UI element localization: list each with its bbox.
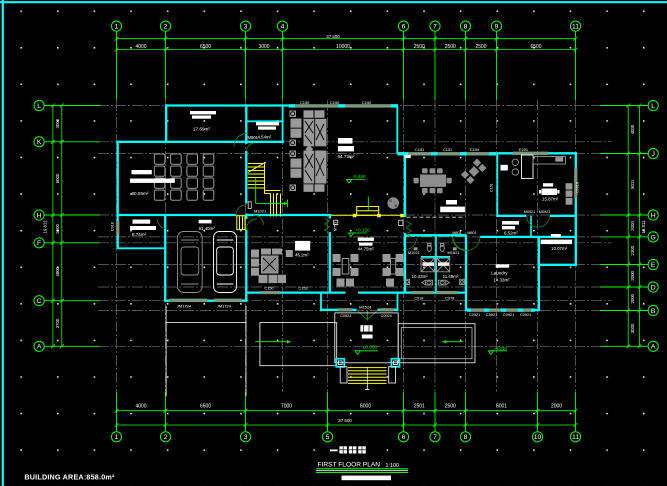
svg-text:Laundry: Laundry <box>491 270 508 275</box>
svg-text:4800: 4800 <box>55 266 60 276</box>
svg-text:M801: M801 <box>452 231 462 235</box>
svg-text:C150: C150 <box>300 100 310 105</box>
svg-text:8.74m²: 8.74m² <box>132 232 147 237</box>
svg-text:M1021: M1021 <box>408 250 420 255</box>
svg-text:J: J <box>651 151 654 158</box>
svg-text:C0921: C0921 <box>469 313 480 317</box>
svg-text:1:100: 1:100 <box>386 463 400 469</box>
svg-text:C150: C150 <box>362 100 372 105</box>
svg-text:2300: 2300 <box>630 245 635 255</box>
svg-text:M801: M801 <box>248 135 259 140</box>
svg-text:2500: 2500 <box>475 44 486 50</box>
svg-text:10: 10 <box>534 434 542 441</box>
svg-text:L: L <box>37 103 41 110</box>
svg-text:2500: 2500 <box>55 223 60 233</box>
svg-text:C150: C150 <box>265 287 274 291</box>
svg-text:A: A <box>651 344 656 351</box>
svg-text:M1524: M1524 <box>359 304 372 309</box>
svg-text:M753: M753 <box>334 222 338 231</box>
svg-text:6.52m²: 6.52m² <box>504 231 518 236</box>
svg-text:C978: C978 <box>445 296 454 300</box>
svg-text:FIRST FLOOR PLAN: FIRST FLOOR PLAN <box>318 461 381 468</box>
svg-text:44.75m²: 44.75m² <box>358 247 375 252</box>
svg-text:C151: C151 <box>443 147 452 152</box>
svg-text:37 500: 37 500 <box>338 418 352 423</box>
svg-text:6500: 6500 <box>200 404 211 410</box>
svg-text:C0921: C0921 <box>503 313 514 317</box>
svg-text:15.87m²: 15.87m² <box>542 197 559 202</box>
svg-text:M0921: M0921 <box>539 210 551 214</box>
svg-text:2: 2 <box>164 434 168 441</box>
svg-text:C: C <box>37 298 42 305</box>
svg-text:2: 2 <box>164 24 168 31</box>
svg-text:6000: 6000 <box>360 404 371 410</box>
svg-text:JM1724: JM1724 <box>217 304 232 309</box>
svg-text:11: 11 <box>572 24 579 31</box>
svg-text:4000: 4000 <box>135 404 146 410</box>
svg-text:6500: 6500 <box>200 44 211 50</box>
svg-text:1: 1 <box>115 24 119 31</box>
svg-text:6001: 6001 <box>496 404 507 410</box>
svg-text:3: 3 <box>244 434 248 441</box>
svg-text:60.55m²: 60.55m² <box>132 191 149 196</box>
svg-text:10.07m²: 10.07m² <box>551 246 568 251</box>
svg-text:1: 1 <box>115 434 119 441</box>
svg-text:D: D <box>651 284 656 291</box>
svg-text:M1021: M1021 <box>254 209 267 214</box>
svg-text:F: F <box>37 240 41 247</box>
svg-text:2000: 2000 <box>630 221 635 231</box>
svg-text:BUILDING AREA:858.0m²: BUILDING AREA:858.0m² <box>24 473 115 482</box>
svg-text:2500: 2500 <box>414 44 425 50</box>
svg-text:C0921: C0921 <box>520 313 531 317</box>
svg-text:3000: 3000 <box>630 323 635 333</box>
svg-text:+0.150: +0.150 <box>356 228 371 233</box>
svg-text:L: L <box>651 103 655 110</box>
svg-text:B: B <box>651 308 656 315</box>
svg-text:9: 9 <box>495 24 499 31</box>
svg-text:C151: C151 <box>415 147 424 152</box>
svg-text:7: 7 <box>433 434 437 441</box>
svg-text:5011: 5011 <box>630 179 635 189</box>
svg-text:3: 3 <box>244 24 248 31</box>
svg-text:E201: E201 <box>519 147 528 152</box>
svg-text:G: G <box>651 234 656 241</box>
svg-text:8: 8 <box>464 24 468 31</box>
svg-text:C153: C153 <box>299 287 308 291</box>
svg-text:JM1724: JM1724 <box>177 304 192 309</box>
svg-text:3000: 3000 <box>55 118 60 128</box>
svg-text:C918: C918 <box>414 296 423 300</box>
svg-text:14.33m²: 14.33m² <box>494 277 511 282</box>
svg-text:4: 4 <box>281 24 285 31</box>
svg-text:10000: 10000 <box>336 44 350 50</box>
svg-text:61.40m²: 61.40m² <box>199 226 216 231</box>
svg-text:6: 6 <box>402 434 406 441</box>
svg-text:M801: M801 <box>467 231 477 235</box>
svg-text:H: H <box>37 212 42 219</box>
svg-text:6500: 6500 <box>530 44 541 50</box>
svg-text:A: A <box>37 344 42 351</box>
svg-text:6000: 6000 <box>55 173 60 183</box>
svg-text:-0.030: -0.030 <box>494 346 507 351</box>
svg-text:17.69m²: 17.69m² <box>193 127 210 132</box>
svg-text:11.49m²: 11.49m² <box>443 274 459 279</box>
svg-text:C154: C154 <box>470 147 480 152</box>
svg-text:C151: C151 <box>490 183 494 192</box>
svg-text:4000: 4000 <box>630 124 635 134</box>
svg-text:2000: 2000 <box>630 270 635 280</box>
svg-text:C918: C918 <box>111 222 115 231</box>
svg-text:6: 6 <box>402 24 406 31</box>
svg-text:C0921: C0921 <box>486 313 497 317</box>
svg-text:E: E <box>651 262 656 269</box>
svg-text:19 811: 19 811 <box>43 220 48 234</box>
svg-text:2500: 2500 <box>445 44 456 50</box>
svg-text:4000: 4000 <box>135 44 146 50</box>
svg-text:4.54m²: 4.54m² <box>258 135 272 140</box>
svg-text:M1521: M1521 <box>448 250 460 255</box>
svg-text:K: K <box>37 139 42 146</box>
svg-text:5: 5 <box>326 434 330 441</box>
svg-text:37 500: 37 500 <box>326 34 340 39</box>
svg-text:C0924: C0924 <box>340 314 351 318</box>
svg-text:8: 8 <box>464 434 468 441</box>
svg-text:19 811: 19 811 <box>641 220 646 234</box>
svg-text:C150: C150 <box>330 100 340 105</box>
svg-text:C0924: C0924 <box>381 314 392 318</box>
svg-text:2000: 2000 <box>551 404 562 410</box>
svg-text:3000: 3000 <box>258 44 269 50</box>
svg-text:±0.000: ±0.000 <box>363 344 378 350</box>
svg-text:C0916: C0916 <box>576 182 580 193</box>
svg-text:2000: 2000 <box>630 293 635 303</box>
svg-text:M0921: M0921 <box>524 210 536 214</box>
svg-text:10.43m²: 10.43m² <box>412 274 429 279</box>
svg-text:64.73m²: 64.73m² <box>338 154 355 159</box>
svg-text:2501: 2501 <box>414 404 425 410</box>
svg-text:2500: 2500 <box>445 404 456 410</box>
svg-text:-0.450: -0.450 <box>353 174 366 179</box>
svg-text:7000: 7000 <box>281 404 292 410</box>
svg-text:46.2m²: 46.2m² <box>295 253 309 258</box>
svg-text:H: H <box>651 212 656 219</box>
svg-text:3700: 3700 <box>55 318 60 328</box>
svg-text:7: 7 <box>433 24 437 31</box>
svg-text:11: 11 <box>572 434 579 441</box>
